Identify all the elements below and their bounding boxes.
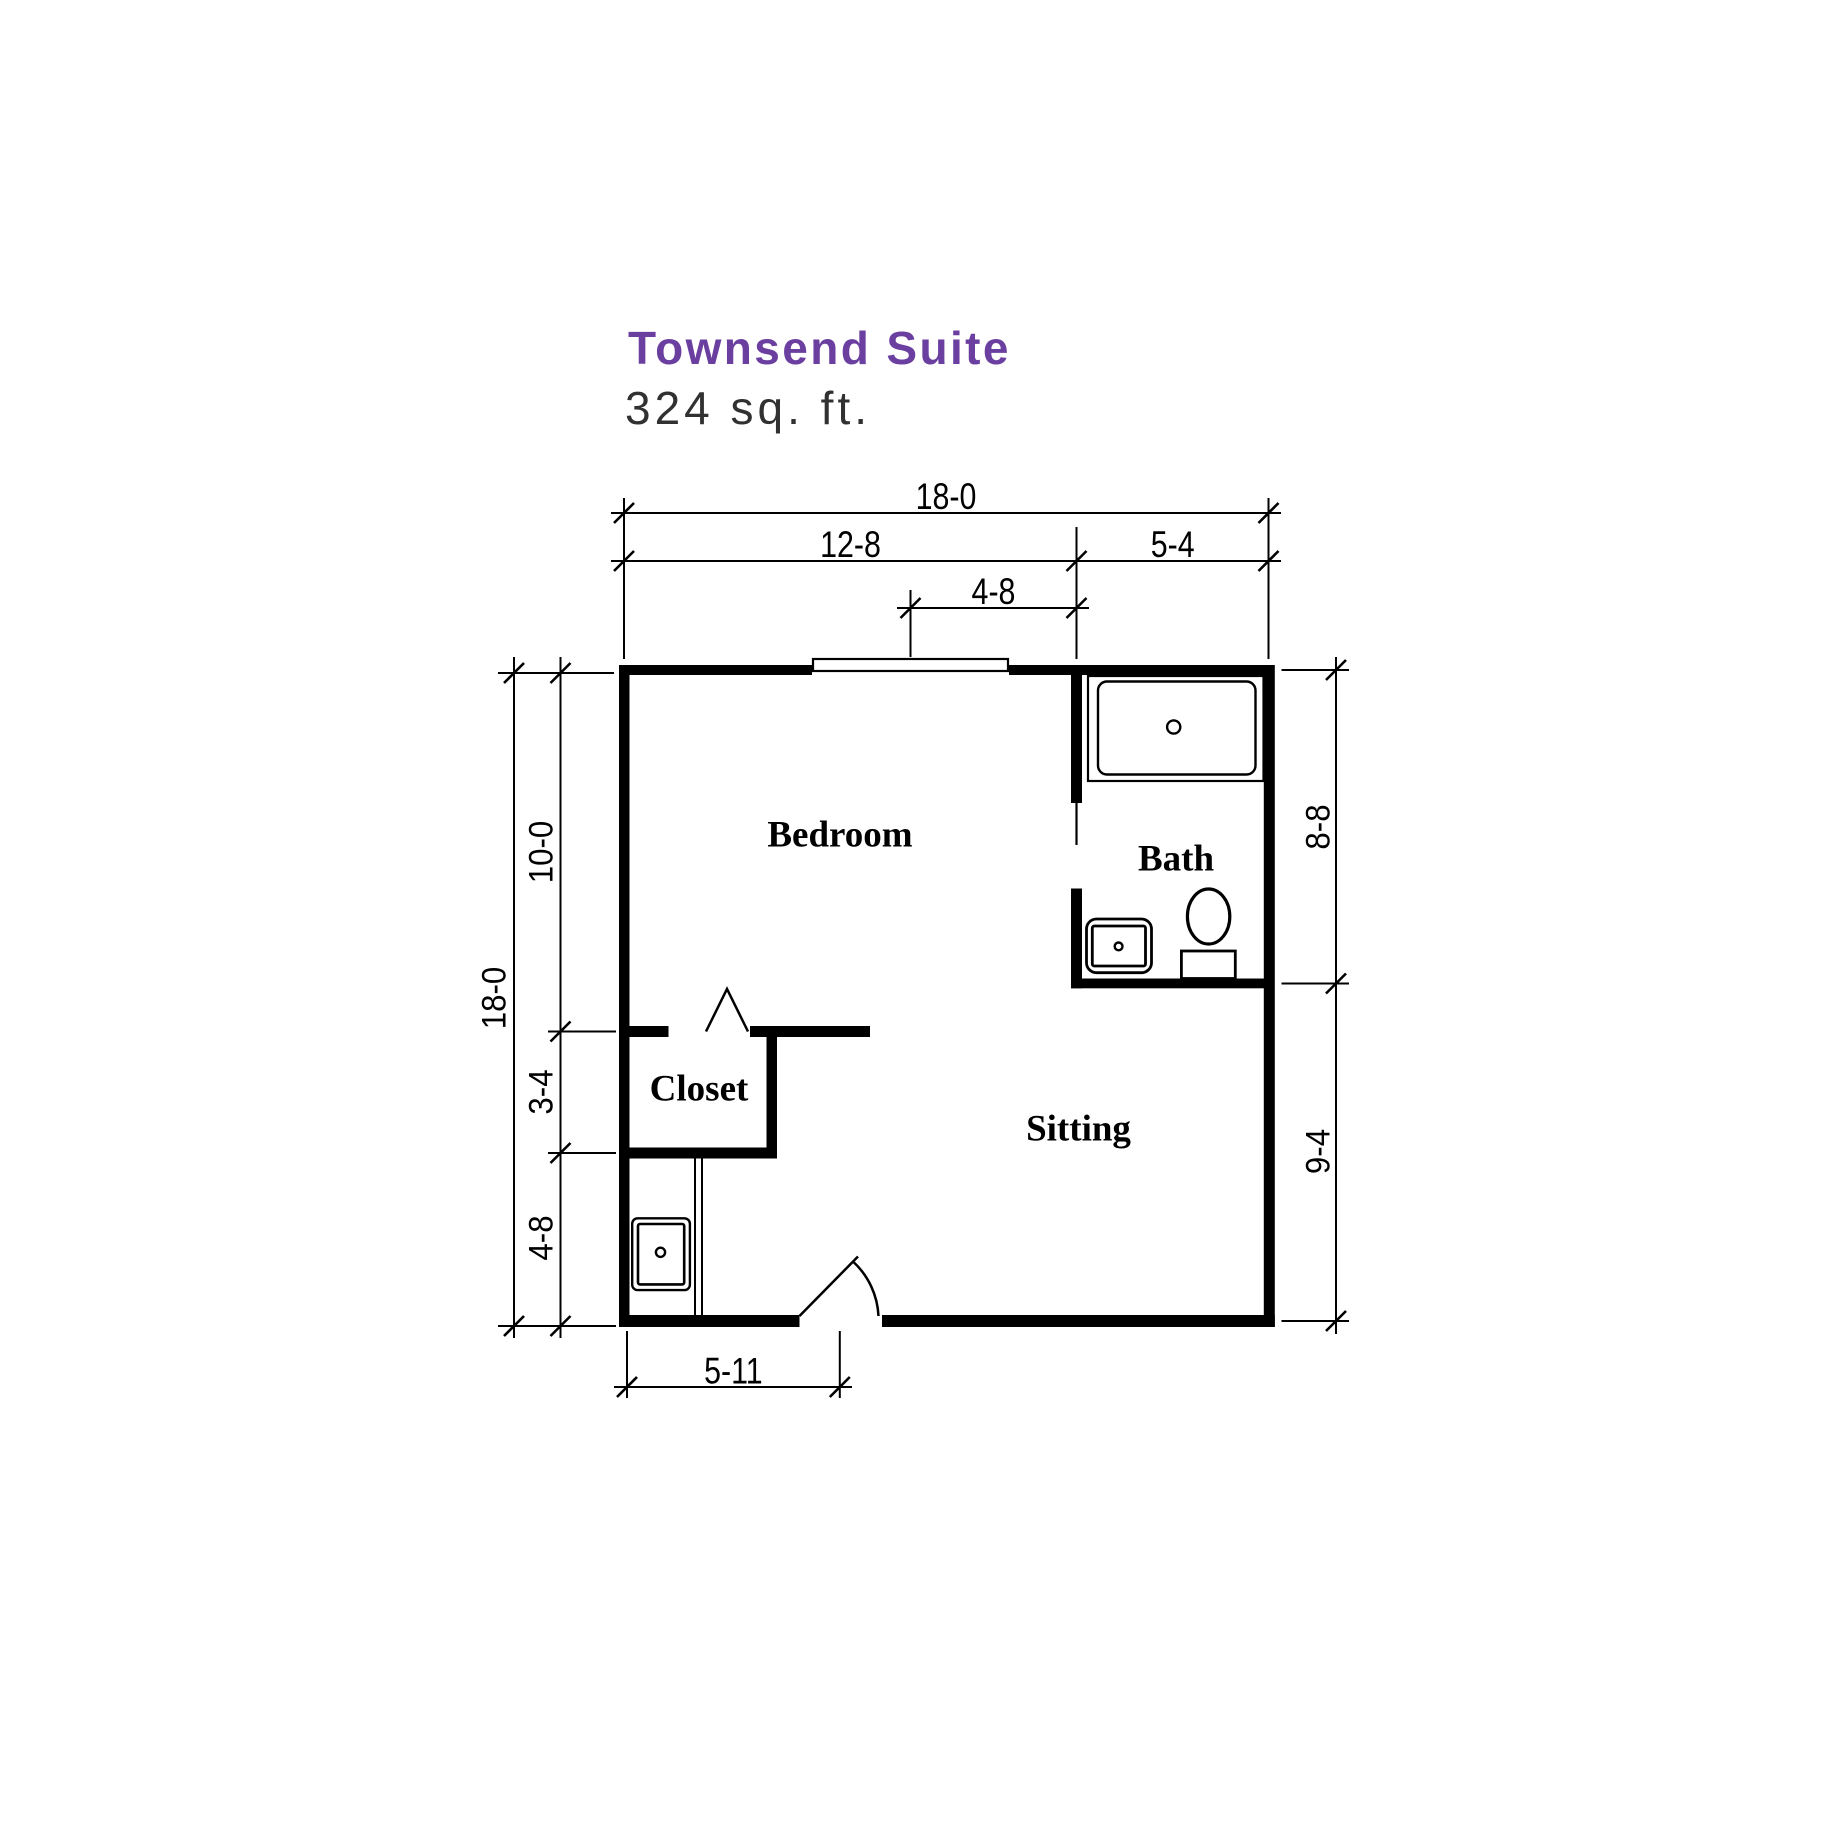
svg-text:324 sq. ft.: 324 sq. ft. xyxy=(625,382,871,434)
svg-text:5-4: 5-4 xyxy=(1151,524,1195,566)
svg-text:Closet: Closet xyxy=(650,1069,749,1110)
svg-text:4-8: 4-8 xyxy=(521,1215,560,1260)
svg-text:8-8: 8-8 xyxy=(1298,804,1337,849)
svg-text:18-0: 18-0 xyxy=(916,476,977,518)
svg-text:Sitting: Sitting xyxy=(1026,1109,1131,1150)
svg-text:Bedroom: Bedroom xyxy=(767,815,912,856)
svg-text:3-4: 3-4 xyxy=(521,1069,560,1114)
svg-text:12-8: 12-8 xyxy=(820,524,881,566)
svg-text:Bath: Bath xyxy=(1138,839,1215,880)
svg-text:9-4: 9-4 xyxy=(1298,1129,1337,1174)
svg-text:Townsend Suite: Townsend Suite xyxy=(628,322,1011,374)
svg-text:10-0: 10-0 xyxy=(521,821,560,884)
svg-text:18-0: 18-0 xyxy=(474,967,513,1030)
svg-text:5-11: 5-11 xyxy=(704,1351,763,1393)
svg-text:4-8: 4-8 xyxy=(972,571,1016,613)
